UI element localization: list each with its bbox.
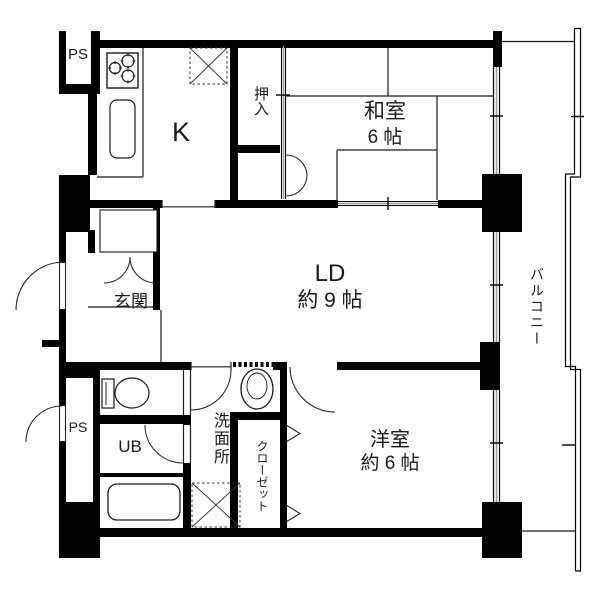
room-label-closet: クローゼット [254, 438, 271, 514]
room-label-ps-top: PS [56, 46, 100, 63]
storage-doors [286, 155, 307, 196]
toilet-icon [102, 378, 149, 408]
room-label-balcony: バルコニー [527, 259, 547, 354]
room-label-ps-bottom: PS [56, 419, 100, 435]
balcony-railing [562, 29, 584, 572]
refrigerator-space-icon [190, 48, 227, 84]
windows [490, 67, 503, 502]
room-label-oshiire: 押入 [250, 78, 271, 124]
washbasin-icon [241, 369, 273, 409]
floor-plan-canvas: PS K 押入 和室6 帖 玄関 LD約 9 帖 バルコニー PS UB 洗面所… [0, 0, 600, 600]
washroom-door-arc [191, 370, 231, 410]
bedroom-door-arc [290, 367, 335, 412]
entrance-door-arc [16, 262, 64, 310]
room-label-kitchen: K [156, 117, 206, 148]
stove-icon [107, 53, 138, 88]
room-label-ld: LD約 9 帖 [270, 261, 390, 314]
closet-folding-doors [286, 425, 300, 522]
room-label-washitsu: 和室6 帖 [330, 99, 440, 150]
room-label-yoshitsu: 洋室約 6 帖 [335, 429, 445, 475]
bathtub-icon [108, 484, 180, 520]
yoshitsu-name: 洋室 [370, 429, 410, 451]
ld-name: LD [315, 260, 346, 287]
room-label-senmenjo: 洗面所 [207, 409, 231, 469]
sink-icon [110, 100, 135, 158]
shoe-cabinet-icon [100, 210, 157, 252]
washitsu-name: 和室 [364, 100, 406, 123]
washitsu-size: 6 帖 [368, 127, 403, 148]
ld-size: 約 9 帖 [297, 289, 362, 312]
room-label-ub: UB [108, 437, 152, 457]
shoe-cabinet-doors [104, 257, 156, 283]
yoshitsu-size: 約 6 帖 [360, 453, 419, 474]
room-label-genkan: 玄関 [102, 287, 160, 312]
